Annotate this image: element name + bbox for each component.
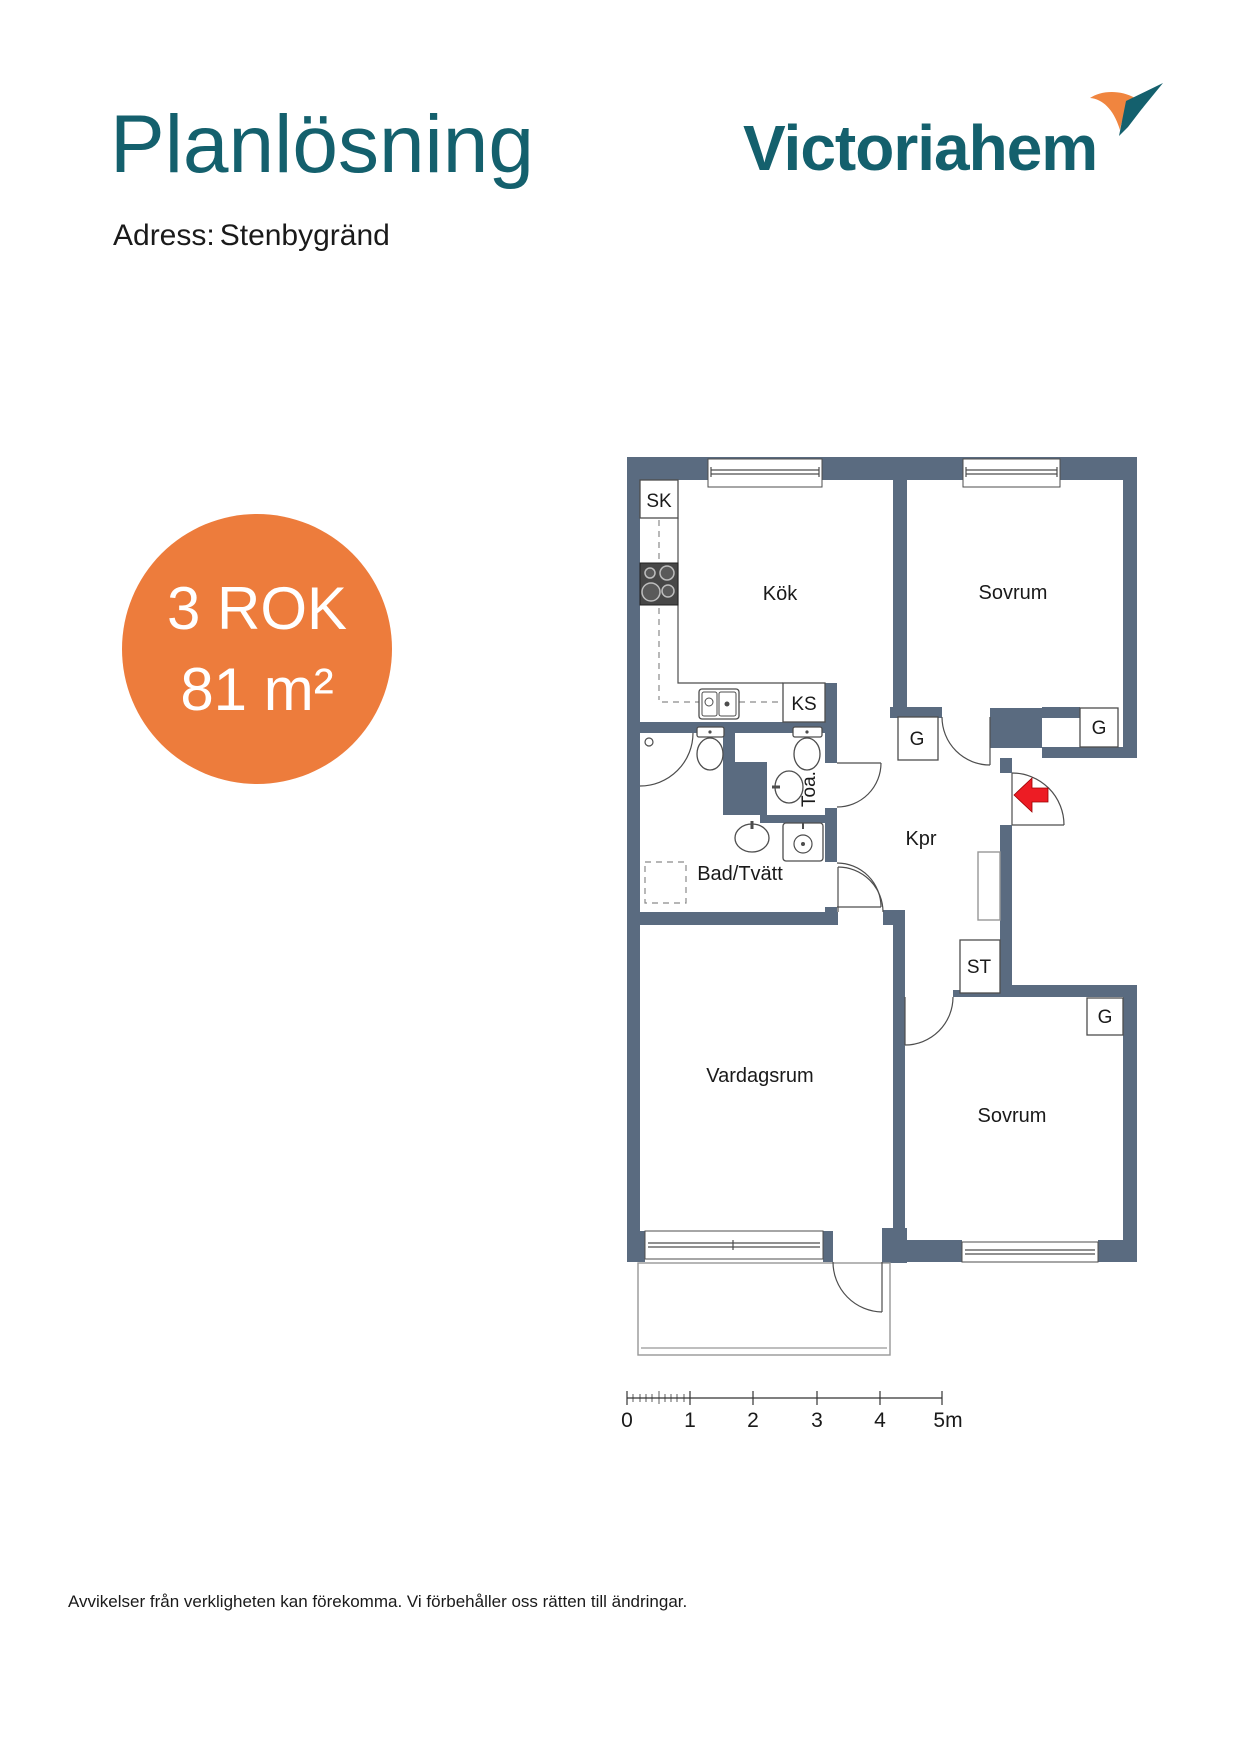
address-row: Adress: Stenbygränd — [113, 219, 390, 252]
floor-plan: Kök Sovrum Kpr Bad/Tvätt Toa. Vardagsrum… — [540, 420, 1180, 1450]
toilet1-button — [708, 730, 711, 733]
hall-niche — [978, 852, 1000, 920]
washbasin-icon-bad — [735, 821, 769, 852]
washing-machine-icon — [783, 823, 823, 861]
wall-shaft-block — [990, 708, 1042, 748]
scale-label-0: 0 — [621, 1409, 633, 1432]
stove-burner-3 — [642, 583, 660, 601]
wall-toa-thin — [723, 733, 735, 762]
kitchen-fixtures — [640, 518, 783, 719]
scale-label-5m: 5m — [933, 1409, 962, 1432]
label-kpr: Kpr — [905, 828, 936, 850]
wall-bath-east-1 — [825, 733, 837, 763]
label-sovrum1: Sovrum — [979, 582, 1048, 604]
stove-icon — [640, 563, 678, 605]
balcony — [638, 1263, 890, 1355]
scale-label-3: 3 — [811, 1409, 823, 1432]
label-ks: KS — [791, 694, 816, 715]
door-vardagsrum-arc — [838, 867, 883, 912]
swoosh-teal-shape — [1119, 83, 1163, 136]
label-st: ST — [967, 957, 992, 978]
wall-bath-east-3 — [825, 907, 837, 912]
kitchen-window-frame — [708, 459, 822, 487]
wall-entrance-v1 — [1000, 758, 1012, 773]
doors — [833, 717, 1064, 1312]
label-g1: G — [910, 729, 925, 750]
wall-sovrum1-bottom-r — [1042, 707, 1080, 718]
toilet-icon-bad — [697, 727, 724, 770]
label-vardagsrum: Vardagsrum — [706, 1065, 813, 1087]
wall-vr-bottom-corner — [627, 1231, 645, 1262]
kitchen-window — [708, 459, 822, 487]
stove-burner-1 — [645, 568, 655, 578]
stove-burner-4 — [662, 585, 674, 597]
door-toa — [837, 763, 881, 807]
wall-kitchen-sovrum — [893, 480, 907, 707]
page-title: Planlösning — [110, 104, 534, 186]
door-sovrum1-arc — [942, 717, 990, 765]
walls — [627, 457, 1137, 1263]
wall-vr-bottom-block — [882, 1228, 907, 1263]
toilet2-bowl — [794, 738, 820, 770]
wall-sv2-bottom-r — [1098, 1240, 1137, 1262]
door-sovrum2 — [905, 997, 953, 1045]
disclaimer-text: Avvikelser från verkligheten kan förekom… — [68, 1592, 687, 1612]
wall-toa-block — [723, 762, 767, 815]
shower-mixer — [655, 725, 668, 732]
bird-swoosh-icon — [1083, 82, 1173, 144]
label-bad-tvatt: Bad/Tvätt — [697, 863, 783, 885]
scale-label-2: 2 — [747, 1409, 759, 1432]
label-sk: SK — [646, 491, 672, 512]
wall-corner-kpr — [883, 910, 905, 925]
wall-right-upper — [1123, 457, 1137, 758]
kitchen-sink-icon — [699, 689, 739, 719]
badge-area: 81 m² — [180, 649, 333, 730]
badge-rok: 3 ROK — [167, 568, 347, 649]
room-labels: Kök Sovrum Kpr Bad/Tvätt Toa. Vardagsrum… — [646, 491, 1112, 1127]
wall-entrance-v2 — [1000, 825, 1012, 997]
stove-burner-2 — [660, 566, 674, 580]
washer-dot — [801, 842, 805, 846]
wall-sovrum1-bottom-l — [890, 707, 942, 718]
wall-vardagsrum-sovrum — [893, 912, 905, 1240]
door-toa-arc — [837, 763, 881, 807]
wall-toa-bottom — [760, 815, 825, 823]
door-vardagsrum — [838, 867, 883, 912]
sink-faucet — [725, 702, 730, 707]
door-sovrum2-arc — [905, 997, 953, 1045]
victoriahem-logo: Victoriahem — [743, 82, 1183, 182]
sovrum1-window — [963, 459, 1060, 487]
scale-label-1: 1 — [684, 1409, 696, 1432]
balcony-outline — [638, 1263, 890, 1355]
toilet1-bowl — [697, 738, 723, 770]
address-label: Adress: — [113, 219, 215, 252]
logo-wordmark: Victoriahem — [743, 116, 1097, 180]
toilet-icon-toa — [793, 727, 822, 770]
wall-bath-east-2 — [825, 808, 837, 862]
wall-sovrum2-top — [1012, 985, 1123, 997]
label-g3: G — [1098, 1007, 1113, 1028]
appliance-space-dashed — [645, 862, 686, 903]
wall-sv2-bottom-l — [907, 1240, 962, 1262]
label-g2: G — [1092, 718, 1107, 739]
address-value: Stenbygränd — [220, 219, 390, 252]
shower-head — [645, 738, 653, 746]
label-kok: Kök — [763, 583, 798, 605]
wall-vr-bottom-mid — [823, 1231, 833, 1262]
vardagsrum-window — [645, 1231, 823, 1259]
sovrum2-window — [962, 1242, 1098, 1262]
apartment-size-badge: 3 ROK 81 m² — [122, 514, 392, 784]
label-toa: Toa. — [799, 771, 820, 807]
sovrum1-window-frame — [963, 459, 1060, 487]
windows — [645, 459, 1098, 1262]
wall-vardagsrum-top — [627, 912, 838, 925]
toilet2-button — [805, 730, 808, 733]
wall-left — [627, 457, 640, 1262]
wall-entrance-top — [1042, 747, 1137, 758]
shower-icon — [640, 725, 693, 786]
vardagsrum-window-frame — [645, 1231, 823, 1259]
door-sovrum1 — [942, 717, 990, 765]
label-sovrum2: Sovrum — [978, 1105, 1047, 1127]
scale-bar: 0 1 2 3 4 5m — [621, 1391, 962, 1432]
scale-label-4: 4 — [874, 1409, 886, 1432]
shower-arc — [640, 733, 693, 786]
wall-right-lower — [1123, 985, 1137, 1262]
sovrum2-window-frame — [962, 1242, 1098, 1262]
shower-knob — [671, 726, 677, 731]
